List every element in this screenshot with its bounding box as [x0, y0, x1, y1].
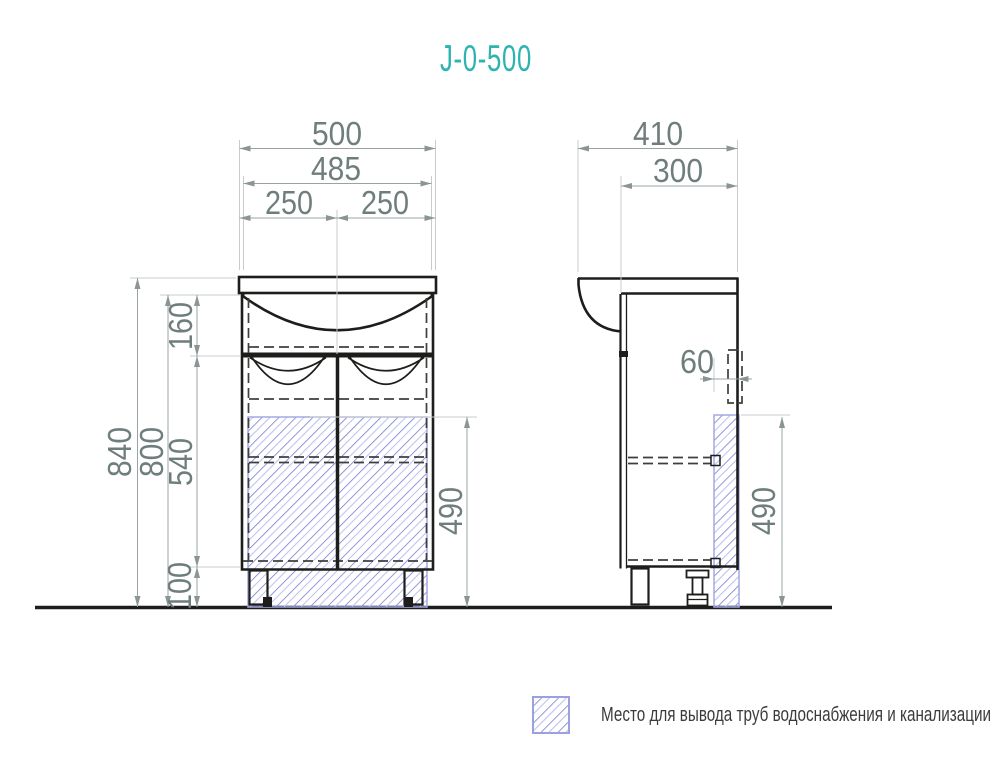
technical-drawing-page: J-0-500: [0, 0, 1000, 769]
hinge-mark: [619, 351, 628, 357]
legend-hatch-swatch: [533, 697, 569, 733]
dim-label-inner-width: 485: [311, 150, 361, 187]
dim-label-pipe-zone-height-side: 490: [745, 487, 782, 535]
leg-foot: [263, 597, 272, 607]
dim-label-inner-depth: 300: [653, 152, 703, 189]
leg-foot: [404, 597, 413, 607]
drawing-title: J-0-500: [440, 38, 532, 79]
vanity-drawing-svg: J-0-500: [0, 0, 1000, 769]
dim-label-sink-section-height: 160: [162, 302, 199, 350]
legend-label: Место для вывода труб водоснабжения и ка…: [601, 704, 991, 726]
pipe-zone-side: [714, 415, 739, 607]
hidden-edges-side: [628, 456, 720, 568]
dimension-labels: 500 485 250 250 410 300 840 800 160 540 …: [101, 115, 782, 610]
dim-label-right-half: 250: [361, 184, 409, 221]
dim-label-left-half: 250: [265, 184, 313, 221]
dim-label-door-section-height: 540: [162, 438, 199, 486]
pipe-cutout-dashed-box: [728, 350, 742, 403]
dimensions: 500 485 250 250 410 300 840 800 160 540 …: [101, 115, 790, 610]
dim-label-pipe-zone-offset: 60: [680, 343, 714, 380]
legs-side: [632, 569, 709, 606]
legend: Место для вывода труб водоснабжения и ка…: [533, 697, 991, 733]
side-view: [578, 278, 742, 607]
dim-label-overall-depth: 410: [633, 115, 683, 152]
washbasin-curve-side: [579, 285, 622, 332]
dim-label-overall-width: 500: [312, 115, 362, 152]
dim-label-leg-height: 100: [161, 562, 198, 610]
dim-label-pipe-zone-height-front: 490: [432, 487, 469, 535]
